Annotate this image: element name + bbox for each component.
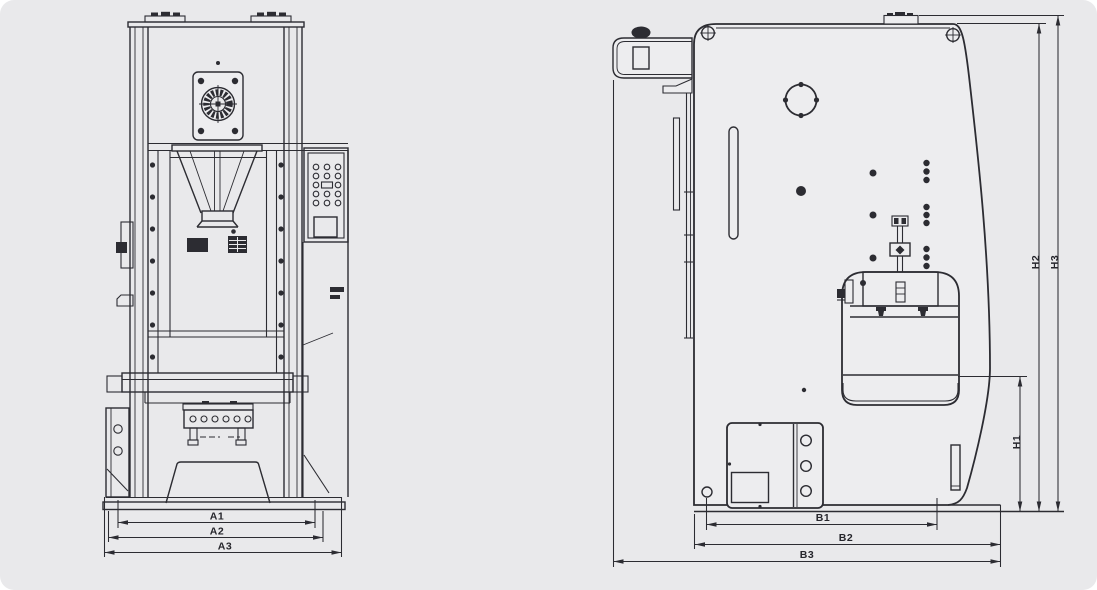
left-guard-strips [674,93,694,338]
name-plate [187,238,208,252]
motor-bracket [663,79,692,93]
guard-strip-right [267,151,284,374]
drawing-canvas: A1 A2 A3 [0,0,1097,590]
control-buttons [313,164,341,206]
dim-label-a1: A1 [210,511,224,523]
slide-housing [842,272,959,405]
dimension-b3: B3 [614,549,1001,562]
guard-strip-left [150,151,170,374]
right-column [284,27,302,498]
dim-label-b2: B2 [839,532,853,544]
dimension-b2: B2 [695,532,1001,545]
bolster-bed [107,373,308,403]
base-plate [103,498,345,510]
front-dimensions: A1 A2 A3 [105,497,342,557]
dim-label-a2: A2 [210,526,224,538]
left-leg [106,408,129,497]
electrical-box [727,423,823,508]
dimension-a2: A2 [109,526,324,538]
dim-label-h2: H2 [1030,255,1042,269]
spec-plate [228,236,247,253]
motor [613,27,692,94]
lifting-pad-bumps [151,12,286,16]
dimension-a3: A3 [105,541,342,553]
dim-label-b3: B3 [800,549,814,561]
dim-label-b1: B1 [816,512,830,524]
right-frame [303,150,348,497]
dimension-h3: H3 [1049,16,1061,512]
belt-guard-funnel [172,145,262,234]
dim-label-h1: H1 [1011,435,1023,449]
dimension-a1: A1 [118,511,315,523]
press-machine-technical-drawing: A1 A2 A3 [0,0,1097,590]
base-opening [166,462,270,503]
flywheel-bearing-flange [193,61,243,140]
dim-label-h3: H3 [1049,255,1061,269]
die-block [183,401,253,445]
motor-cap [632,27,651,39]
dim-label-a3: A3 [218,541,232,553]
panel-display [314,217,337,237]
crown-plate [128,12,304,27]
side-view: B1 B2 B3 H1 H2 [613,12,1064,567]
top-lifting-pad [884,12,918,24]
dimension-b1: B1 [707,512,938,525]
dimension-h1: H1 [1011,377,1023,512]
dimension-h2: H2 [1030,24,1042,512]
control-panel [304,148,348,242]
front-view: A1 A2 A3 [103,12,348,557]
